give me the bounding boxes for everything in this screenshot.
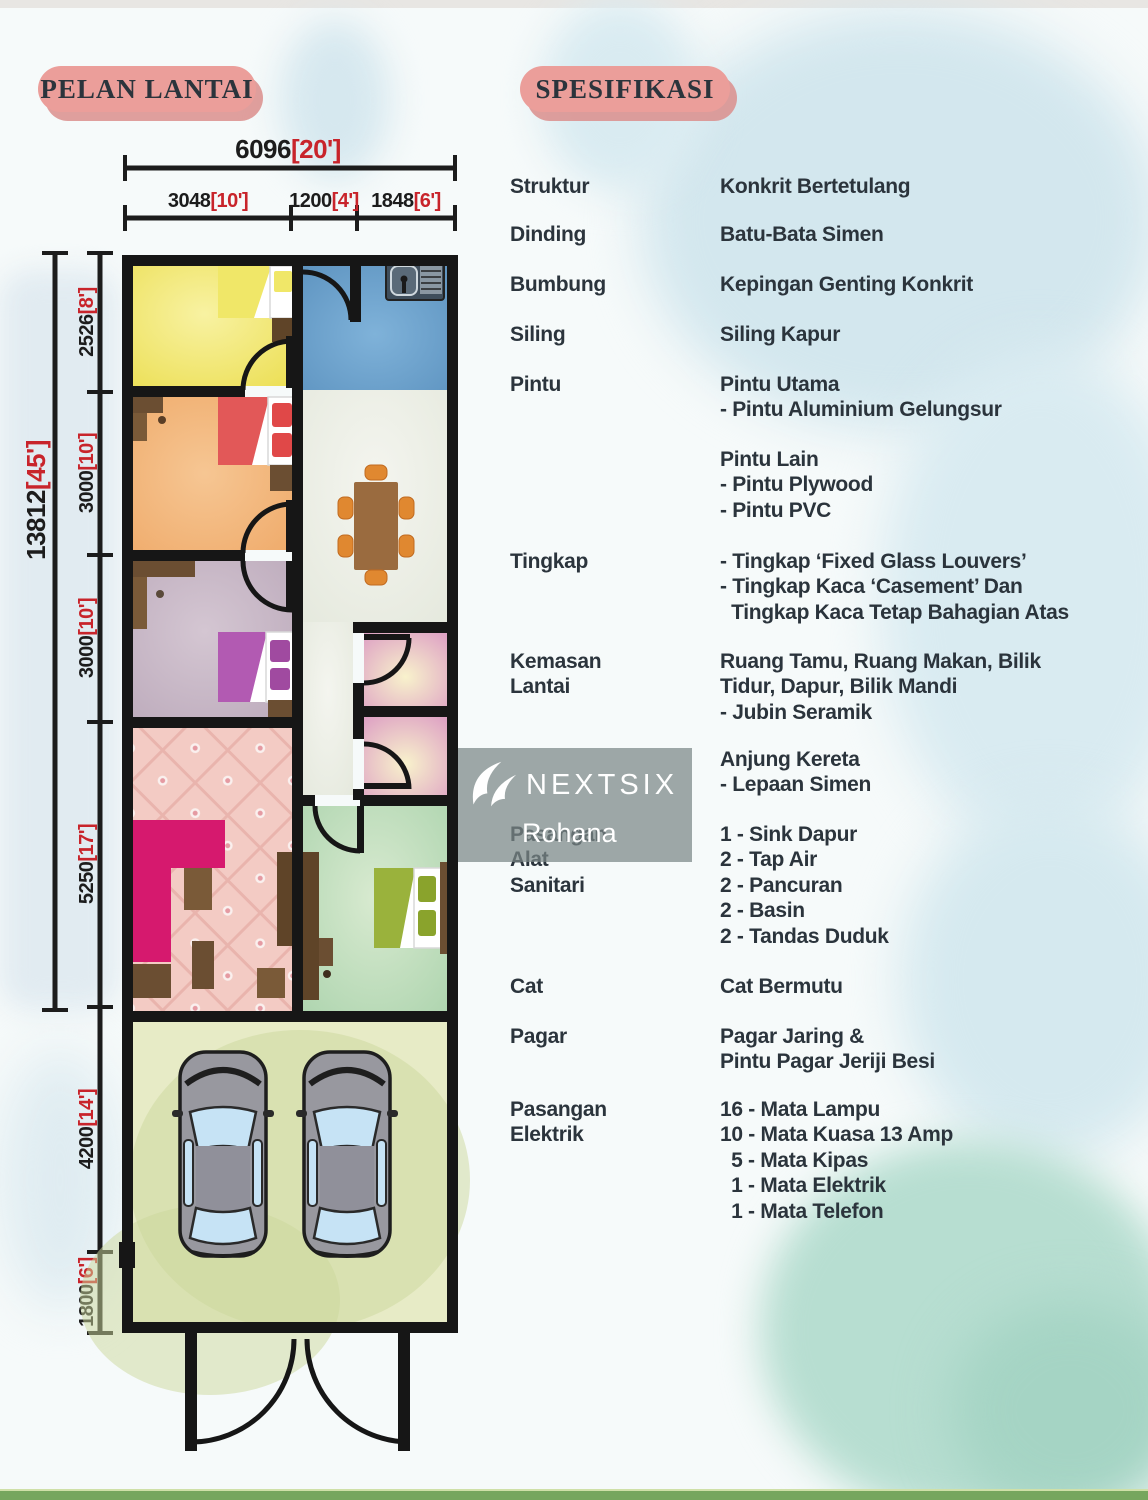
spec-value-line: - Jubin Seramik — [720, 700, 1116, 725]
dim-left-segment: 3000[10'] — [76, 598, 98, 678]
spec-value-line: 2 - Tap Air — [720, 847, 1116, 872]
knob — [158, 416, 166, 424]
spec-value-line: - Pintu Aluminium Gelungsur — [720, 397, 1116, 422]
spec-value: Konkrit Bertetulang — [720, 174, 1116, 199]
wardrobe — [303, 852, 319, 1000]
spec-value: Kepingan Genting Konkrit — [720, 272, 1116, 297]
spec-value-line: Siling Kapur — [720, 322, 1116, 347]
chair — [338, 497, 353, 519]
spec-label: Dinding — [510, 222, 720, 247]
spec-value: - Tingkap ‘Fixed Glass Louvers’ - Tingka… — [720, 549, 1116, 625]
door-leaf — [286, 561, 293, 612]
corridor — [303, 622, 353, 795]
spec-value-line: - Tingkap ‘Fixed Glass Louvers’ — [720, 549, 1116, 574]
car — [172, 1052, 274, 1256]
knob — [323, 970, 331, 978]
flyer-page: 6096[20'] 3048[10'] 1200[4'] 1848[6'] 13… — [0, 0, 1148, 1500]
dim-top-segment: 1200[4'] — [289, 190, 359, 212]
spec-value-line: 1 - Mata Telefon — [720, 1199, 1116, 1224]
spec-row: Bumbung Kepingan Genting Konkrit — [510, 272, 1116, 297]
spec-value-line: 2 - Pancuran — [720, 873, 1116, 898]
chair — [365, 465, 387, 480]
spec-value-line: Kepingan Genting Konkrit — [720, 272, 1116, 297]
spec-row: Pagar Pagar Jaring & Pintu Pagar Jeriji … — [510, 1024, 1116, 1075]
headboard — [440, 862, 447, 954]
spec-value: Pintu Utama - Pintu Aluminium Gelungsur — [720, 372, 1116, 423]
spec-value-line: - Lepaan Simen — [720, 772, 1116, 797]
spec-label: Pasangan Elektrik — [510, 1097, 720, 1224]
pillow — [418, 876, 436, 902]
spec-value-line: Konkrit Bertetulang — [720, 174, 1116, 199]
spec-label-line: Siling — [510, 322, 720, 347]
spec-value: Ruang Tamu, Ruang Makan, Bilik Tidur, Da… — [720, 649, 1116, 725]
gate-hinge — [119, 1242, 135, 1268]
spec-value-line: - Pintu Plywood — [720, 472, 1116, 497]
spec-value-line: Pintu Utama — [720, 372, 1116, 397]
spec-row: Cat Cat Bermutu — [510, 974, 1116, 999]
spec-label-line: Struktur — [510, 174, 720, 199]
spec-value: 1 - Sink Dapur 2 - Tap Air 2 - Pancuran … — [720, 822, 1116, 949]
door-leaf — [286, 336, 293, 388]
dim-left-segment: 5250[17'] — [76, 824, 98, 904]
pillow — [272, 403, 292, 427]
chair — [399, 535, 414, 557]
dim-left-total: 13812[45'] — [21, 440, 51, 560]
spec-value-line: - Pintu PVC — [720, 498, 1116, 523]
cabinet — [257, 968, 285, 998]
pillow — [270, 668, 290, 690]
sink-drainer — [420, 266, 442, 294]
spec-label: Tingkap — [510, 549, 720, 625]
pillow — [418, 910, 436, 936]
spec-row: Tingkap - Tingkap ‘Fixed Glass Louvers’ … — [510, 549, 1116, 625]
spec-value-line: 2 - Tandas Duduk — [720, 924, 1116, 949]
spec-label: Cat — [510, 974, 720, 999]
spec-value-line: Anjung Kereta — [720, 747, 1116, 772]
spec-value: Batu-Bata Simen — [720, 222, 1116, 247]
spec-value-line: Pagar Jaring & — [720, 1024, 1116, 1049]
spec-label: Struktur — [510, 174, 720, 199]
pillow — [270, 640, 290, 662]
gate-arc — [307, 1339, 410, 1442]
spec-label-line: Elektrik — [510, 1122, 720, 1147]
dim-left-segment: 4200[14'] — [76, 1089, 98, 1169]
spec-label-line: Dinding — [510, 222, 720, 247]
chair — [365, 570, 387, 585]
car — [296, 1052, 398, 1256]
spec-value-line: Pintu Pagar Jeriji Besi — [720, 1049, 1116, 1074]
spec-row: Dinding Batu-Bata Simen — [510, 222, 1116, 247]
dim-top-segment: 1848[6'] — [371, 190, 441, 212]
spec-value-line: Pintu Lain — [720, 447, 1116, 472]
dresser — [133, 413, 147, 441]
spec-value-line: 10 - Mata Kuasa 13 Amp — [720, 1122, 1116, 1147]
door-leaf — [364, 783, 410, 789]
dim-left-segment: 3000[10'] — [76, 433, 98, 513]
spec-label-line: Pagar — [510, 1024, 720, 1049]
spec-label-line: Pasangan — [510, 1097, 720, 1122]
spec-value-line: Tidur, Dapur, Bilik Mandi — [720, 674, 1116, 699]
faucet — [402, 279, 406, 293]
door-leaf — [357, 806, 364, 853]
dim-top-segment: 3048[10'] — [168, 190, 248, 212]
sofa — [133, 820, 225, 868]
spec-value: Pagar Jaring & Pintu Pagar Jeriji Besi — [720, 1024, 1116, 1075]
nightstand — [268, 700, 296, 717]
wardrobe — [319, 938, 333, 966]
wardrobe — [133, 577, 147, 629]
spec-label-line: Bumbung — [510, 272, 720, 297]
cabinet — [192, 941, 214, 989]
spec-label: Kemasan Lantai — [510, 649, 720, 725]
knob — [156, 590, 164, 598]
spec-row: Struktur Konkrit Bertetulang — [510, 174, 1116, 199]
spec-value-line: 5 - Mata Kipas — [720, 1148, 1116, 1173]
spec-value-line: Cat Bermutu — [720, 974, 1116, 999]
spec-value: 16 - Mata Lampu 10 - Mata Kuasa 13 Amp 5… — [720, 1097, 1116, 1224]
spec-value-line: 1 - Mata Elektrik — [720, 1173, 1116, 1198]
spec-label — [510, 447, 720, 523]
floor-plan-header-badge: PELAN LANTAI — [38, 66, 256, 112]
chair — [399, 497, 414, 519]
watermark-brand-row: NEXTSIX — [466, 756, 692, 814]
spec-label-line: Sanitari — [510, 873, 720, 898]
spec-value-line: - Tingkap Kaca ‘Casement’ Dan — [720, 574, 1116, 599]
tv-console — [277, 852, 292, 946]
floor-plan-title: PELAN LANTAI — [40, 74, 253, 105]
gate-post — [185, 1333, 197, 1451]
dining-table — [354, 482, 398, 570]
spec-row: Pintu Pintu Utama - Pintu Aluminium Gelu… — [510, 372, 1116, 423]
door-leaf — [286, 500, 293, 552]
spec-label-line: Pintu — [510, 372, 720, 397]
spec-value: Pintu Lain - Pintu Plywood - Pintu PVC — [720, 447, 1116, 523]
spec-value: Anjung Kereta - Lepaan Simen — [720, 747, 1116, 798]
spec-label-line: Lantai — [510, 674, 720, 699]
spec-value: Siling Kapur — [720, 322, 1116, 347]
spec-label: Pintu — [510, 372, 720, 423]
room-bathroom-1 — [364, 633, 447, 706]
spec-value-line: 16 - Mata Lampu — [720, 1097, 1116, 1122]
spec-value-line: 1 - Sink Dapur — [720, 822, 1116, 847]
spec-label: Siling — [510, 322, 720, 347]
specification-header-badge: SPESIFIKASI — [520, 66, 730, 112]
floor-plan — [80, 255, 470, 1451]
coffee-table — [184, 868, 212, 910]
door-leaf — [364, 634, 410, 640]
spec-value-line: 2 - Basin — [720, 898, 1116, 923]
pillow — [274, 271, 292, 292]
spec-row: Pintu Lain - Pintu Plywood - Pintu PVC — [510, 447, 1116, 523]
side-table — [133, 964, 171, 998]
spec-label-line: Tingkap — [510, 549, 720, 574]
spec-label: Bumbung — [510, 272, 720, 297]
spec-label: Pagar — [510, 1024, 720, 1075]
chair — [338, 535, 353, 557]
spec-row: Kemasan Lantai Ruang Tamu, Ruang Makan, … — [510, 649, 1116, 725]
nextsix-logo-icon — [466, 756, 518, 814]
wardrobe — [133, 561, 195, 577]
spec-value-line: Ruang Tamu, Ruang Makan, Bilik — [720, 649, 1116, 674]
spec-label-line: Cat — [510, 974, 720, 999]
gate-post — [398, 1333, 410, 1451]
watermark-agent-name: Rohana — [522, 818, 692, 849]
spec-row: Siling Siling Kapur — [510, 322, 1116, 347]
spec-label-line: Kemasan — [510, 649, 720, 674]
spec-row: Pasangan Elektrik 16 - Mata Lampu 10 - M… — [510, 1097, 1116, 1224]
spec-value-line: Tingkap Kaca Tetap Bahagian Atas — [720, 600, 1116, 625]
watermark-brand-text: NEXTSIX — [526, 769, 678, 802]
pillow — [272, 433, 292, 457]
specification-title: SPESIFIKASI — [535, 74, 714, 105]
spec-value-line: Batu-Bata Simen — [720, 222, 1116, 247]
dim-top-total: 6096[20'] — [235, 134, 341, 164]
dim-left-segment: 2526[8'] — [76, 287, 98, 357]
spec-value: Cat Bermutu — [720, 974, 1116, 999]
dresser — [133, 397, 163, 413]
watermark: NEXTSIX Rohana — [458, 748, 692, 862]
